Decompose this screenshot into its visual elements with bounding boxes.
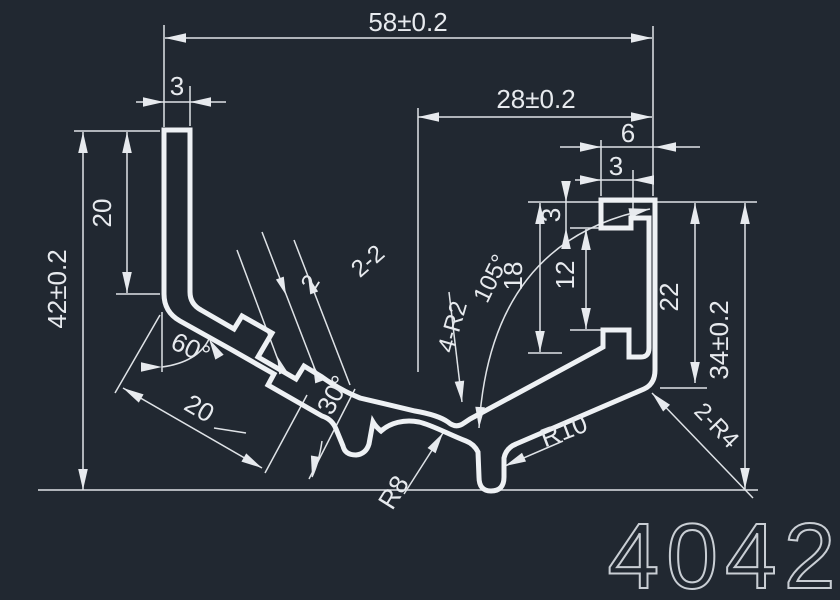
dim-overall-height: 42±0.2 <box>42 249 72 328</box>
dim-channel-depth: 18 <box>498 262 528 291</box>
dim-channel-opening: 12 <box>550 261 580 290</box>
dim-left-arm: 20 <box>87 199 117 228</box>
cad-drawing-canvas: 58±0.2 3 28±0.2 6 3 42±0.2 20 20 60° 30°… <box>0 0 840 600</box>
dim-left-wall: 3 <box>170 71 184 101</box>
part-number: 4042 <box>608 504 840 600</box>
dim-flange-lip: 3 <box>609 151 623 181</box>
dim-flange-height: 22 <box>654 283 684 312</box>
dim-flange-width: 6 <box>621 118 635 148</box>
dim-overall-width: 58±0.2 <box>368 7 447 37</box>
dim-right-height: 34±0.2 <box>704 300 734 379</box>
dim-lip-height: 3 <box>536 208 566 222</box>
dim-right-span: 28±0.2 <box>496 84 575 114</box>
profile-drawing-4042: 58±0.2 3 28±0.2 6 3 42±0.2 20 20 60° 30°… <box>0 0 840 600</box>
